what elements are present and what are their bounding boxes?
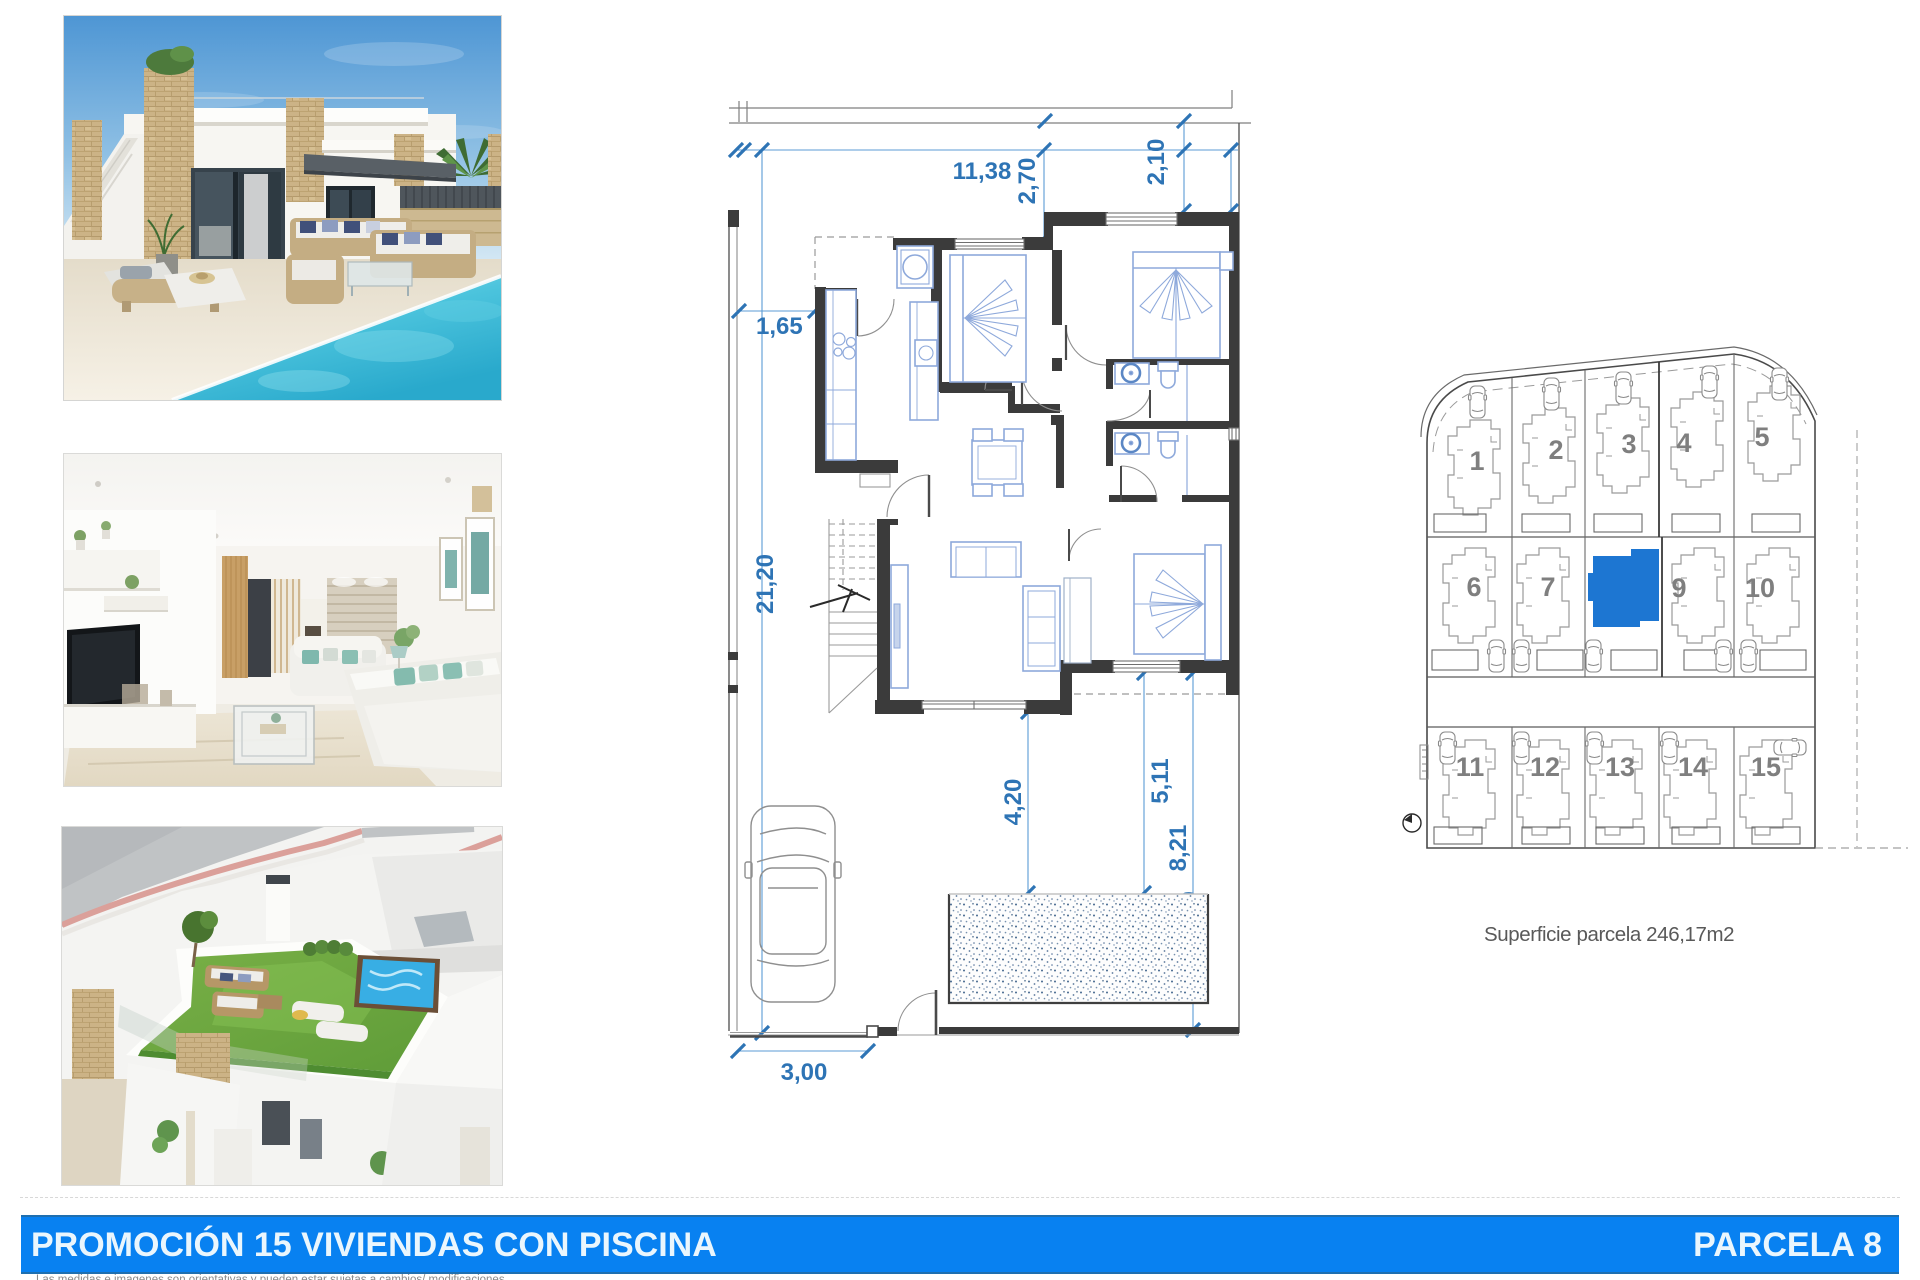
svg-text:Superficie parcela 246,17m2: Superficie parcela 246,17m2 xyxy=(1484,923,1734,946)
svg-text:9: 9 xyxy=(1671,573,1686,603)
svg-text:1,65: 1,65 xyxy=(756,313,803,340)
svg-text:12: 12 xyxy=(1530,752,1560,782)
svg-text:2: 2 xyxy=(1548,435,1563,465)
svg-text:2,10: 2,10 xyxy=(1143,139,1170,186)
svg-text:6: 6 xyxy=(1466,572,1481,602)
svg-text:11,38: 11,38 xyxy=(953,158,1012,185)
svg-text:7: 7 xyxy=(1540,572,1555,602)
svg-text:11: 11 xyxy=(1456,752,1485,782)
svg-text:4,20: 4,20 xyxy=(1000,779,1027,826)
svg-text:3: 3 xyxy=(1621,429,1636,459)
svg-text:13: 13 xyxy=(1605,752,1635,782)
svg-text:5: 5 xyxy=(1754,422,1769,452)
svg-text:2,70: 2,70 xyxy=(1014,158,1041,205)
svg-text:5,11: 5,11 xyxy=(1147,758,1174,803)
svg-text:10: 10 xyxy=(1745,573,1775,603)
svg-text:4: 4 xyxy=(1676,428,1691,458)
svg-text:3,00: 3,00 xyxy=(781,1059,828,1086)
svg-text:21,20: 21,20 xyxy=(752,554,779,614)
svg-text:15: 15 xyxy=(1751,752,1781,782)
svg-text:14: 14 xyxy=(1678,752,1708,782)
svg-text:8,21: 8,21 xyxy=(1165,825,1192,872)
svg-text:1: 1 xyxy=(1469,446,1484,476)
